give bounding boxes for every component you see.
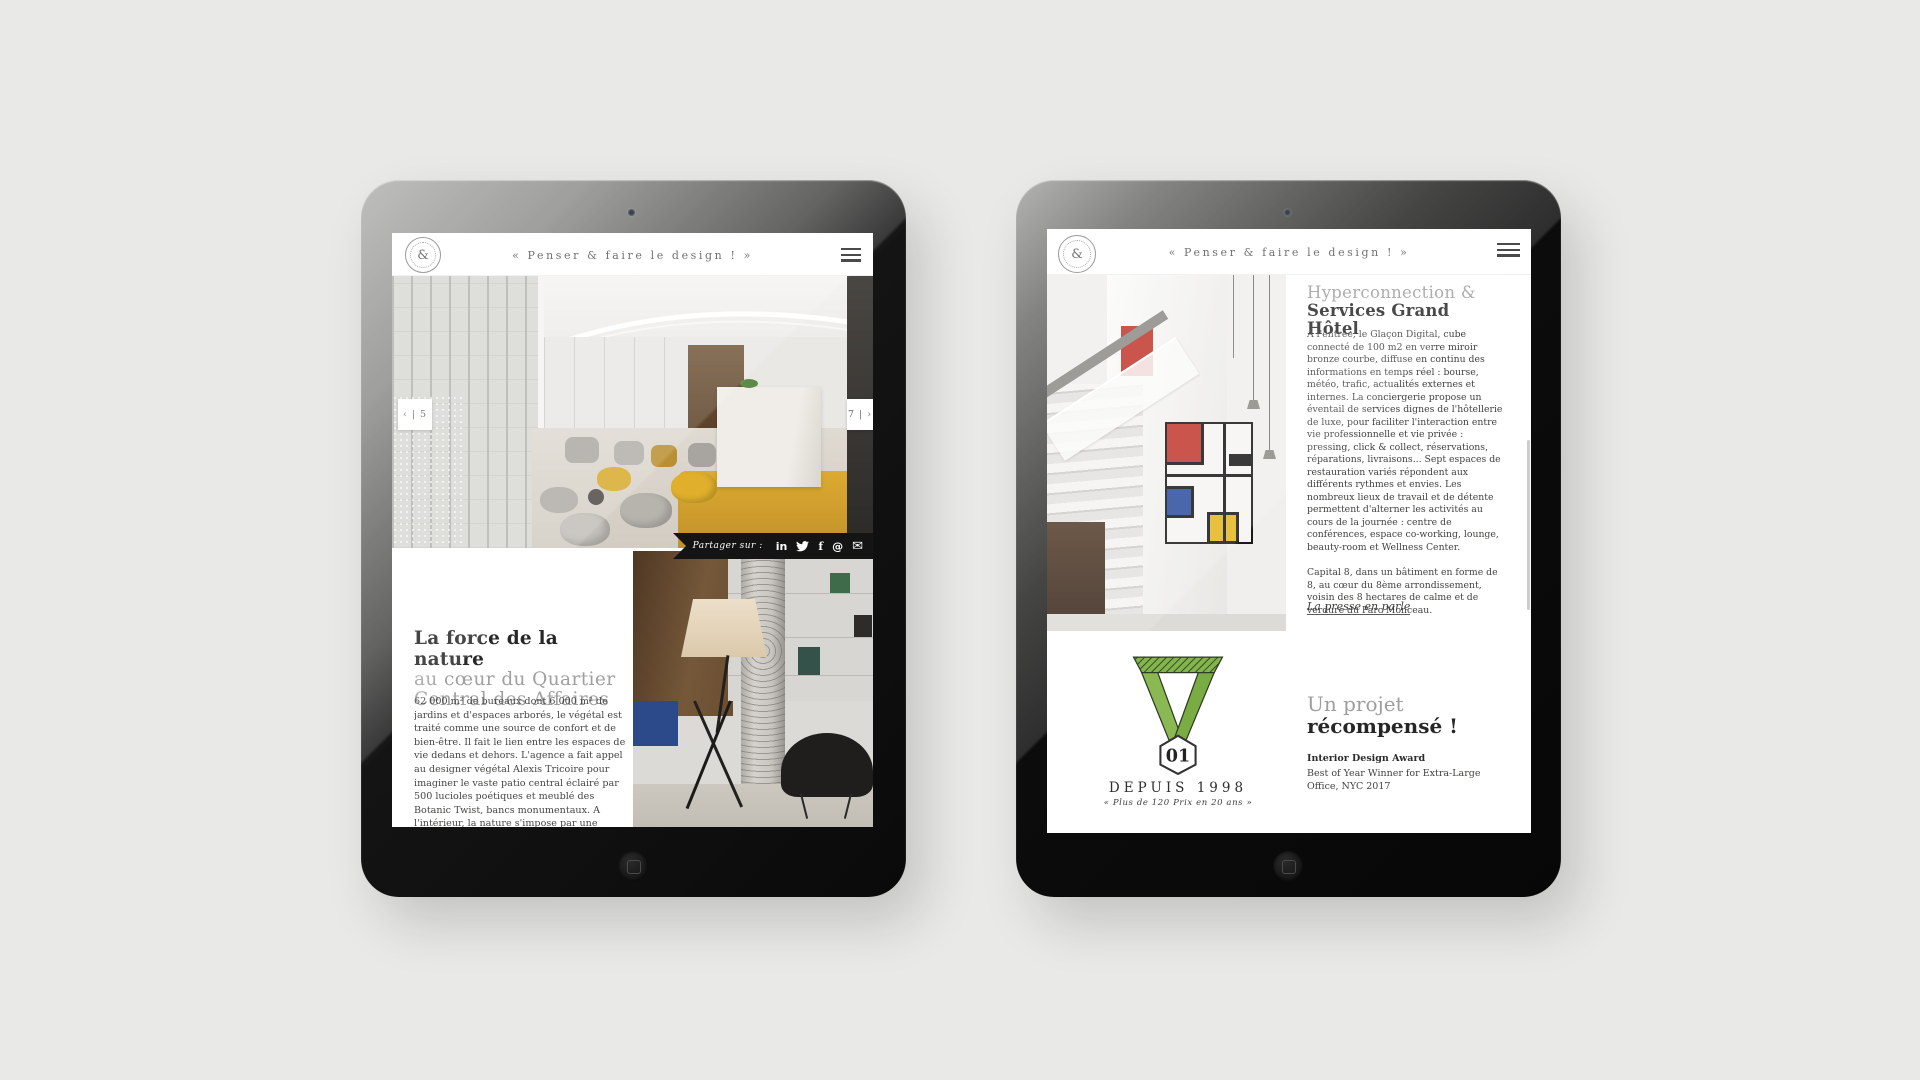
green-box — [830, 573, 850, 593]
facebook-icon[interactable]: f — [818, 541, 823, 552]
linkedin-icon[interactable]: in — [776, 541, 788, 552]
spiral-column — [741, 551, 785, 789]
award-title-light: Un projet — [1307, 693, 1489, 715]
spiral-engraving — [741, 551, 785, 789]
mondrian-line — [1223, 424, 1226, 542]
share-ribbon: Partager sur : in f @ ✉ — [673, 533, 873, 559]
article-paragraph: À l'entrée, le Glaçon Digital, cube conn… — [1307, 329, 1505, 554]
mondrian-red — [1167, 424, 1204, 465]
site-tagline: « Penser & faire le design ! » — [392, 249, 873, 262]
grey-pouf — [540, 487, 578, 513]
site-tagline: « Penser & faire le design ! » — [1047, 246, 1531, 259]
blue-seat — [633, 701, 678, 746]
carousel-prev-button[interactable]: ‹ | 5 — [398, 399, 432, 430]
staircase-photo — [1047, 274, 1286, 631]
share-label: Partager sur : — [693, 541, 763, 551]
home-button[interactable] — [618, 851, 648, 881]
press-link-wrap: La presse en parle — [1307, 595, 1410, 614]
webpage-left: & « Penser & faire le design ! » — [392, 233, 873, 827]
office-lounge-photo — [392, 275, 873, 548]
carousel-next-button[interactable]: 7 | › — [847, 399, 873, 430]
dark-box — [854, 615, 872, 637]
medal-number: 01 — [1166, 747, 1190, 767]
side-table — [588, 489, 604, 505]
pendant-cable — [1253, 274, 1254, 400]
article-body: 62 000 m² de bureaux dont 6 000 m² de ja… — [414, 695, 632, 827]
pendant-cable — [1233, 274, 1234, 358]
pendant-lamp — [1263, 450, 1276, 459]
mondrian-blue — [1167, 486, 1194, 518]
scrollbar[interactable] — [1527, 440, 1530, 610]
menu-icon[interactable] — [841, 248, 861, 265]
yellow-pouf — [671, 472, 717, 503]
award-since: DEPUIS 1998 — [1068, 780, 1288, 796]
award-title: Un projet récompensé ! Interior Design A… — [1307, 693, 1489, 793]
award-description: Best of Year Winner for Extra-Large Offi… — [1307, 767, 1489, 793]
floor — [1047, 614, 1286, 631]
article-title-bold: La force de la nature — [414, 628, 632, 670]
grey-pouf — [560, 513, 610, 546]
award-medal: 01 — [1126, 653, 1230, 775]
award-name: Interior Design Award — [1307, 753, 1489, 764]
camera-icon — [1284, 209, 1291, 216]
mondrian-artwork — [1165, 422, 1253, 544]
pendant-cable — [1269, 274, 1270, 450]
armchair — [688, 443, 716, 467]
site-header: & « Penser & faire le design ! » — [392, 233, 873, 276]
grey-pouf — [620, 493, 672, 528]
reception-desk — [717, 387, 821, 487]
home-button[interactable] — [1273, 851, 1303, 881]
tablet-right: & « Penser & faire le design ! » — [1016, 180, 1561, 897]
menu-icon[interactable] — [1497, 243, 1520, 260]
at-icon[interactable]: @ — [832, 541, 843, 552]
glass-partition — [544, 337, 684, 429]
leather-chair — [781, 733, 873, 797]
article-title-light: au cœur du Quartier — [414, 670, 632, 690]
twitter-icon[interactable] — [796, 541, 809, 552]
camera-icon — [628, 209, 635, 216]
pendant-lamp — [1247, 400, 1260, 409]
lamp-detail-photo — [633, 551, 873, 827]
yellow-pouf — [597, 467, 631, 491]
article-title-light: Hyperconnection & — [1307, 284, 1507, 302]
armchair — [651, 445, 677, 467]
lamp-shade — [681, 599, 767, 657]
mondrian-line — [1167, 474, 1251, 477]
site-header: & « Penser & faire le design ! » — [1047, 229, 1531, 275]
desk-plant — [740, 379, 758, 388]
armchair — [565, 437, 599, 463]
press-link[interactable]: La presse en parle — [1307, 600, 1410, 615]
award-title-bold: récompensé ! — [1307, 715, 1489, 738]
armchair — [614, 441, 644, 465]
webpage-right: & « Penser & faire le design ! » — [1047, 229, 1531, 833]
award-tagline: « Plus de 120 Prix en 20 ans » — [1068, 798, 1288, 808]
green-box — [798, 647, 820, 675]
article-body: À l'entrée, le Glaçon Digital, cube conn… — [1307, 329, 1505, 630]
mail-icon[interactable]: ✉ — [852, 540, 863, 553]
mondrian-black — [1229, 454, 1251, 466]
tablet-left: & « Penser & faire le design ! » — [361, 180, 906, 897]
